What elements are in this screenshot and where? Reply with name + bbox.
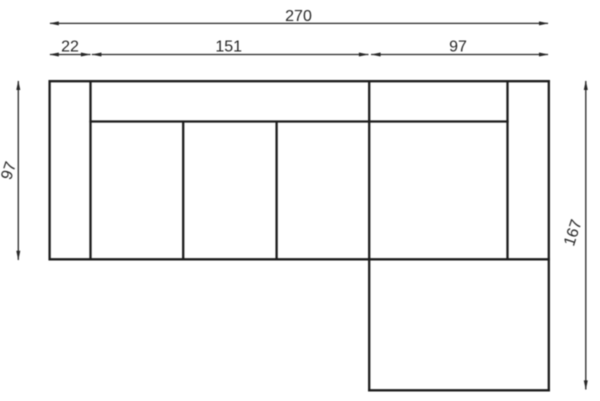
svg-text:22: 22 xyxy=(61,39,79,56)
svg-text:151: 151 xyxy=(215,39,242,56)
svg-text:97: 97 xyxy=(449,39,467,56)
svg-text:270: 270 xyxy=(285,8,312,25)
